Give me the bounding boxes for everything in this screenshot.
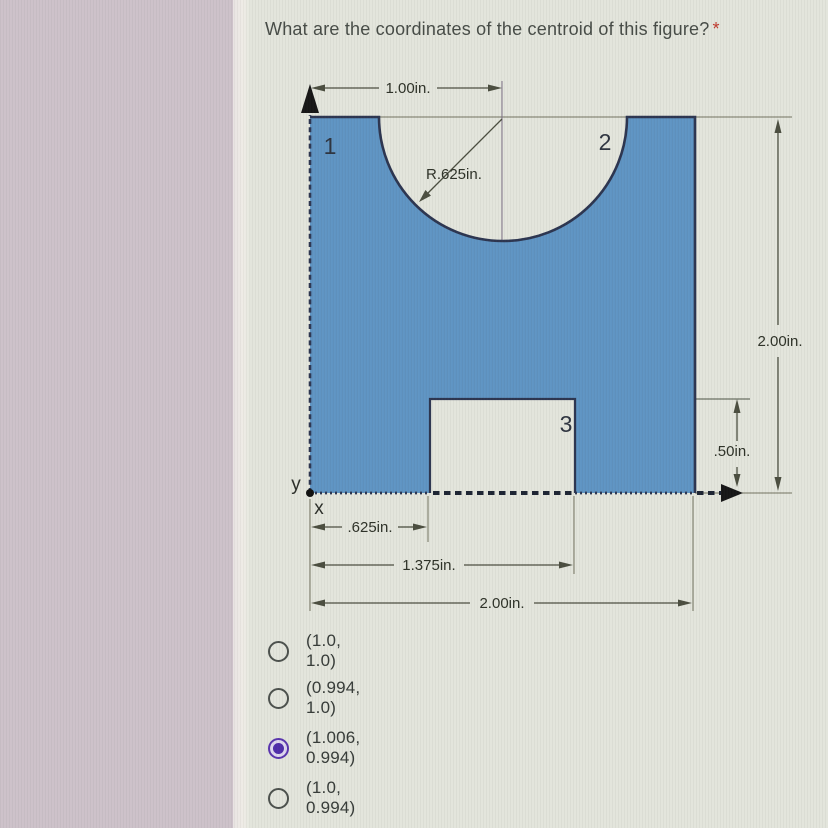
option-label[interactable]: (1.006, 0.994) bbox=[306, 728, 360, 768]
shape-outline-notch bbox=[430, 399, 575, 493]
required-asterisk: * bbox=[712, 19, 719, 39]
centroid-figure: 1.00in. R.625in. 2.00in. .50in. .625in. … bbox=[280, 75, 820, 625]
radio-button[interactable] bbox=[268, 641, 289, 662]
radio-button[interactable] bbox=[268, 688, 289, 709]
x-axis-arrow-icon bbox=[721, 484, 743, 502]
question-title: What are the coordinates of the centroid… bbox=[265, 18, 825, 40]
option-row-2[interactable]: (0.994, 1.0) bbox=[268, 683, 360, 713]
origin-point bbox=[306, 489, 314, 497]
dim-top-width: 1.00in. bbox=[385, 80, 430, 97]
dim-notch-height: .50in. bbox=[714, 443, 751, 460]
y-axis-label: y bbox=[291, 474, 301, 495]
dim-notch-right: 1.375in. bbox=[402, 557, 455, 574]
radio-button[interactable] bbox=[268, 788, 289, 809]
dim-right-height: 2.00in. bbox=[757, 333, 802, 350]
radio-button[interactable] bbox=[268, 738, 289, 759]
dim-radius: R.625in. bbox=[426, 166, 482, 183]
dim-notch-left: .625in. bbox=[347, 519, 392, 536]
option-row-3[interactable]: (1.006, 0.994) bbox=[268, 733, 360, 763]
form-question-card: What are the coordinates of the centroid… bbox=[250, 0, 828, 828]
photo-left-margin bbox=[0, 0, 233, 828]
card-edge bbox=[233, 0, 250, 828]
option-row-1[interactable]: (1.0, 1.0) bbox=[268, 636, 341, 666]
option-label[interactable]: (0.994, 1.0) bbox=[306, 678, 360, 718]
question-title-text: What are the coordinates of the centroid… bbox=[265, 19, 709, 39]
x-axis-label: x bbox=[314, 498, 324, 519]
region-label-2: 2 bbox=[599, 129, 612, 155]
region-label-3: 3 bbox=[560, 411, 573, 437]
option-row-4[interactable]: (1.0, 0.994) bbox=[268, 783, 355, 813]
dim-bottom-width: 2.00in. bbox=[479, 595, 524, 612]
option-label[interactable]: (1.0, 0.994) bbox=[306, 778, 355, 818]
region-label-1: 1 bbox=[324, 133, 337, 159]
option-label[interactable]: (1.0, 1.0) bbox=[306, 631, 341, 671]
